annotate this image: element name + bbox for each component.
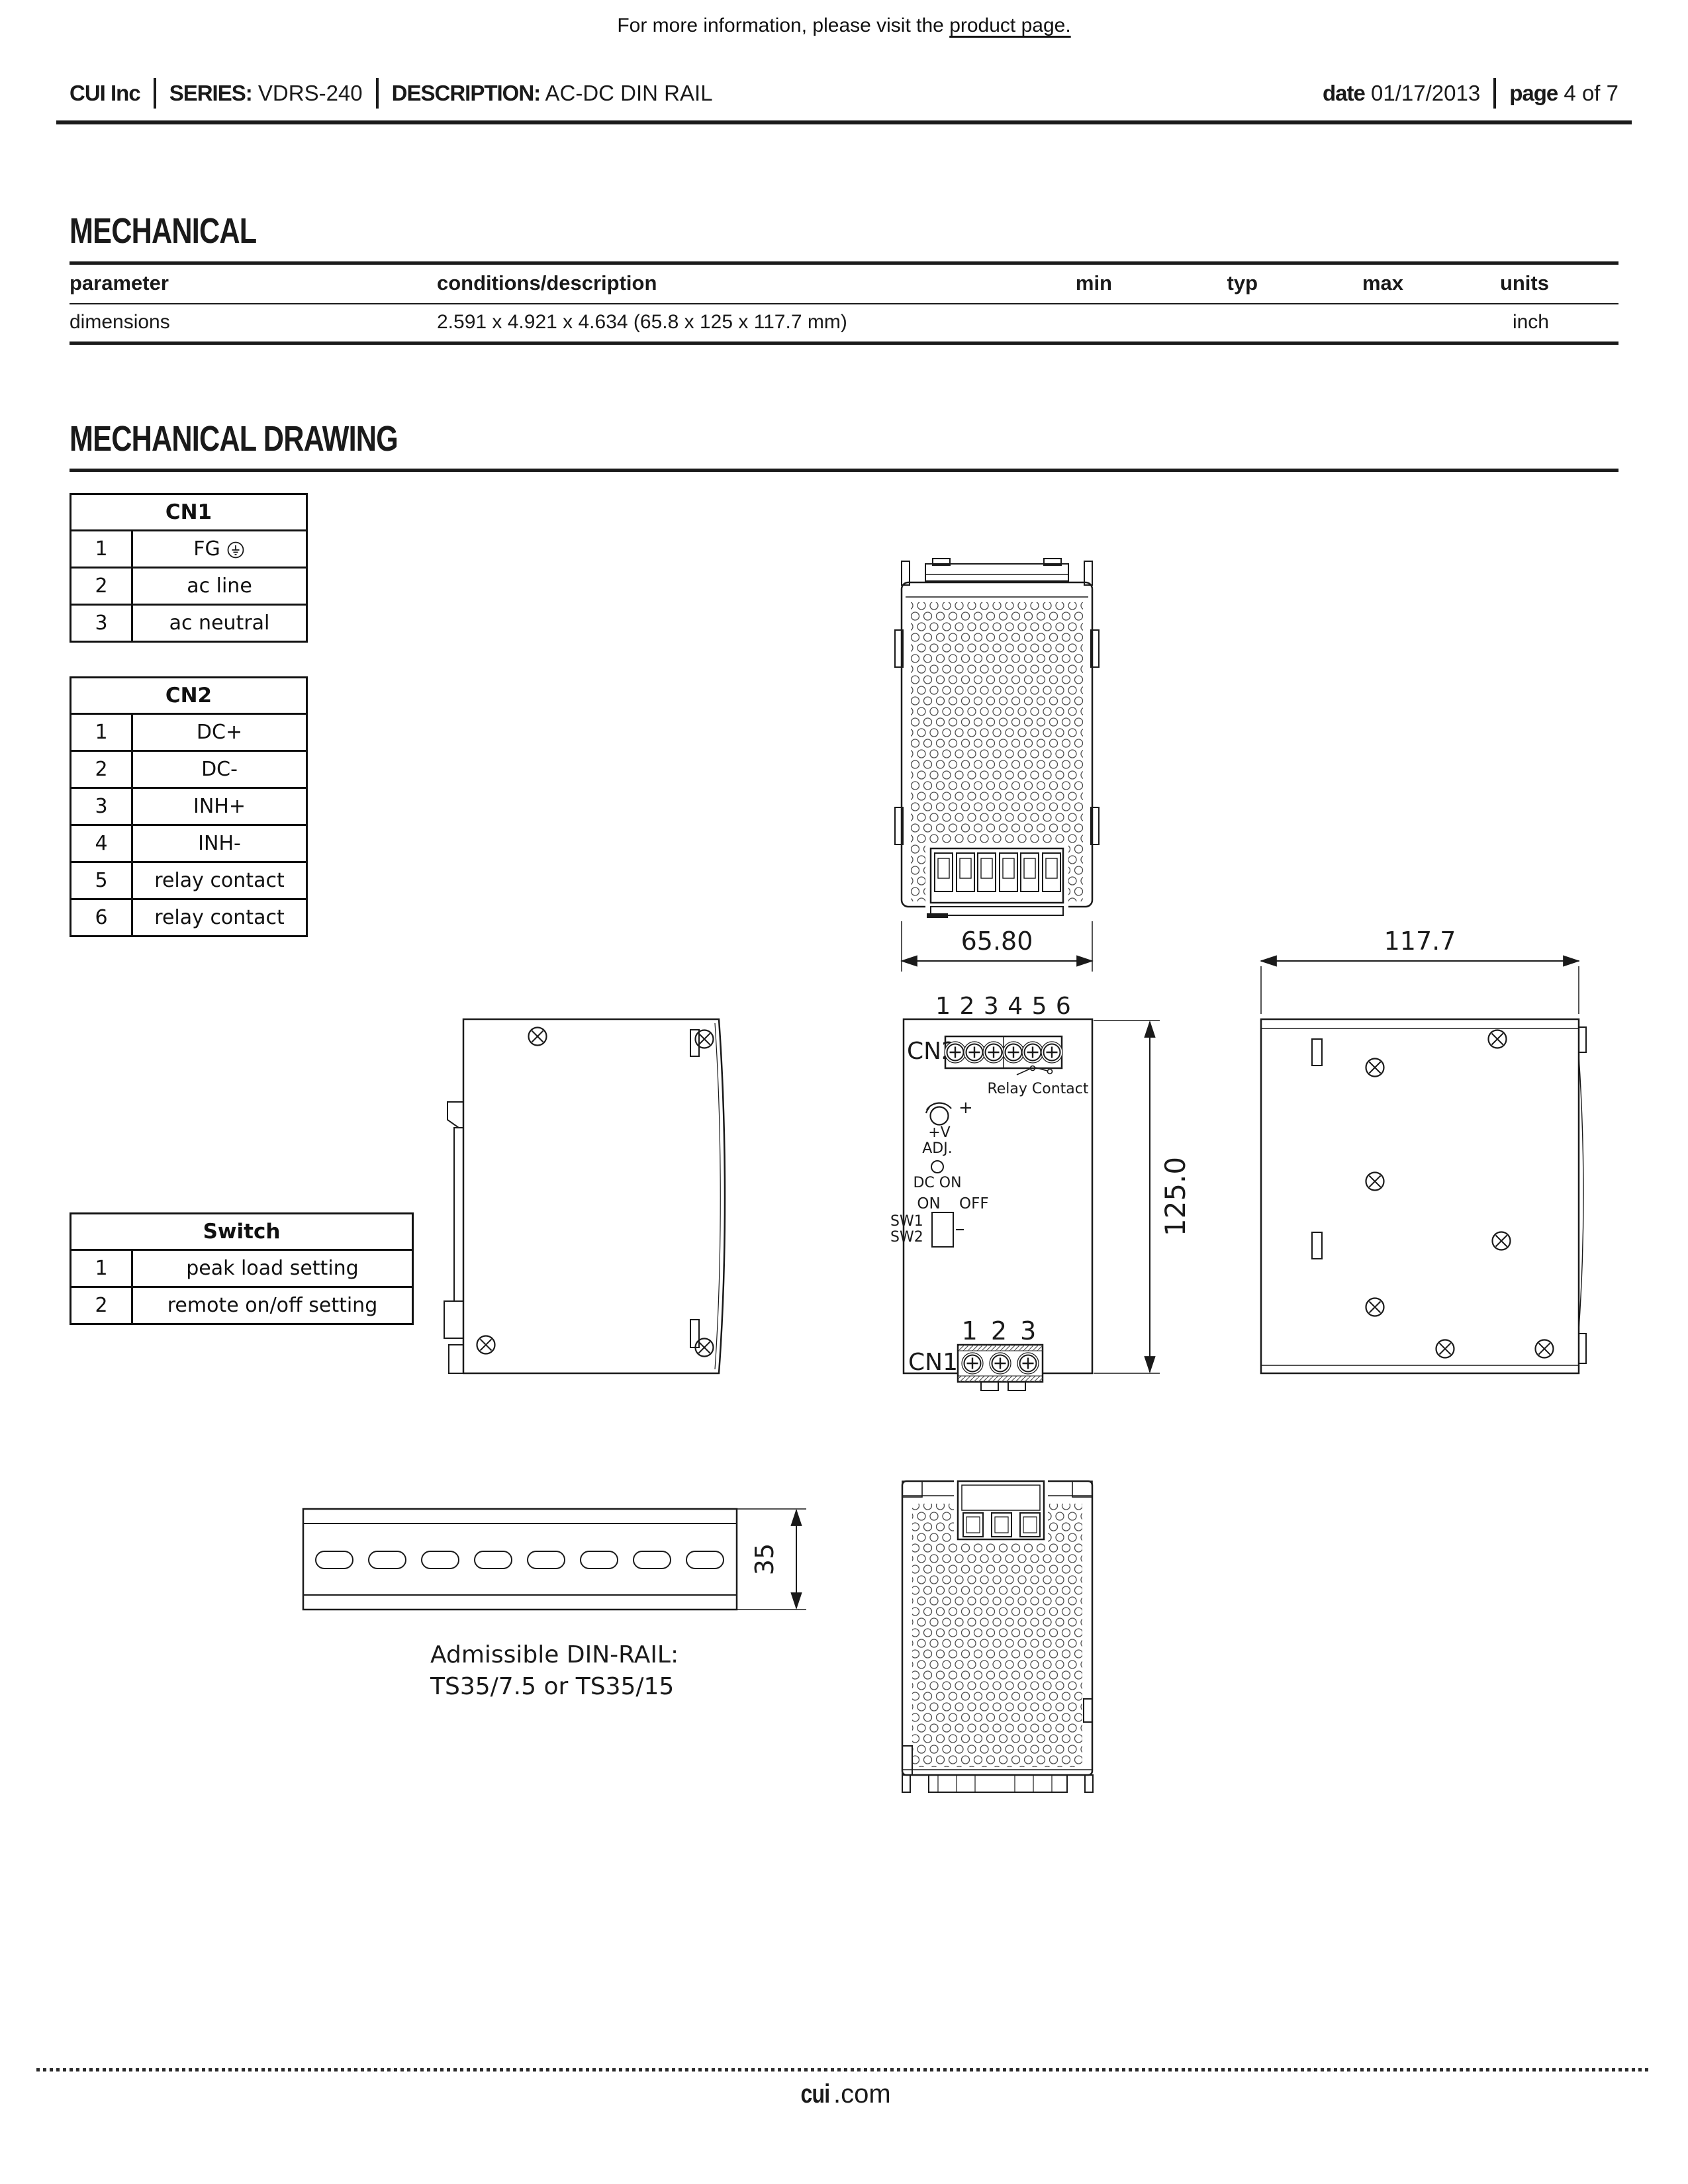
company-name: CUI Inc <box>70 81 140 106</box>
screw-icon <box>1366 1173 1384 1191</box>
bottom-view-drawing <box>902 1479 1093 1792</box>
mechanical-drawings-canvas: 65.80 1 2 3 4 5 6 CN2 <box>0 516 1688 1860</box>
din-clip-hook <box>1579 1027 1586 1052</box>
rail-caption-line2: TS35/7.5 or TS35/15 <box>430 1673 674 1700</box>
dc-on-led <box>931 1161 943 1173</box>
date: date 01/17/2013 <box>1323 81 1480 106</box>
sw2-label: SW2 <box>890 1229 923 1246</box>
right-side-view-drawing: 117.7 <box>1261 927 1586 1373</box>
info-bar: For more information, please visit the p… <box>0 15 1688 37</box>
rail-caption-line1: Admissible DIN-RAIL: <box>430 1641 679 1668</box>
cn2-terminal-block <box>945 1036 1062 1068</box>
product-page-link[interactable]: product page. <box>949 15 1070 36</box>
rule <box>70 303 1618 304</box>
top-view-drawing: 65.80 <box>895 559 1099 972</box>
spec-header-row: parameter conditions/description min typ… <box>70 271 1618 295</box>
cell-units: inch <box>1403 311 1549 334</box>
vadj-label-1: +V <box>928 1124 950 1141</box>
screw-icon <box>1366 1059 1384 1077</box>
screw-icon <box>477 1336 495 1354</box>
header-left: CUI Inc SERIES: VDRS-240 DESCRIPTION: AC… <box>70 78 713 109</box>
footer-site: cui.com <box>0 2079 1688 2109</box>
side-body <box>463 1019 725 1373</box>
screw-icon <box>696 1030 714 1048</box>
dim-rail-label: 35 <box>750 1543 779 1575</box>
cell-typ <box>1112 311 1258 334</box>
cn1-label: CN1 <box>908 1349 958 1376</box>
col-parameter: parameter <box>70 271 437 295</box>
dim-width-label: 65.80 <box>961 927 1033 956</box>
dip-switch <box>932 1212 964 1247</box>
page-number: page 4 of 7 <box>1509 81 1618 106</box>
sw-on-label: ON <box>917 1195 940 1212</box>
series: SERIES: VDRS-240 <box>169 81 363 106</box>
screw-icon <box>1436 1340 1454 1358</box>
din-clip-top <box>925 559 1068 581</box>
col-units: units <box>1403 271 1549 295</box>
cn1-pin-numbers: 1 2 3 <box>962 1316 1039 1345</box>
dimension-height: 125.0 <box>1094 1021 1192 1373</box>
footer-dotted-rule <box>36 2068 1652 2071</box>
dc-on-label: DC ON <box>913 1175 961 1191</box>
info-text: For more information, please visit the <box>617 15 949 36</box>
sw-off-label: OFF <box>959 1195 989 1212</box>
cell-conditions: 2.591 x 4.921 x 4.634 (65.8 x 125 x 117.… <box>437 311 966 334</box>
section-title-mechanical-drawing: MECHANICAL DRAWING <box>70 418 480 459</box>
dimension-width: 65.80 <box>902 921 1092 972</box>
cell-min <box>966 311 1112 334</box>
din-rail-drawing: 35 Admissible DIN-RAIL: TS35/7.5 or TS35… <box>303 1509 806 1700</box>
dimension-rail: 35 <box>737 1509 806 1610</box>
vadj-label-2: ADJ. <box>922 1140 952 1157</box>
cn1-terminal-block <box>958 1345 1043 1390</box>
header-right: date 01/17/2013 page 4 of 7 <box>1323 78 1618 109</box>
sw1-label: SW1 <box>890 1213 923 1230</box>
relay-contact-symbol <box>1017 1066 1053 1075</box>
input-terminal-block-bottom <box>958 1481 1044 1539</box>
left-side-view-drawing <box>444 1019 725 1373</box>
voltage-adjust-pot <box>926 1103 951 1125</box>
side-body <box>1261 1019 1579 1373</box>
col-typ: typ <box>1112 271 1258 295</box>
din-spring-clip <box>454 1128 463 1301</box>
plus-sign: + <box>959 1098 973 1118</box>
screw-icon <box>1536 1340 1554 1358</box>
screw-icon <box>1489 1030 1507 1048</box>
mounting-feet <box>902 1775 1093 1792</box>
din-clip-hook <box>1579 1334 1586 1363</box>
dim-height-label: 125.0 <box>1159 1157 1192 1236</box>
divider <box>1493 78 1496 109</box>
divider <box>154 78 156 109</box>
header-rule <box>56 120 1632 124</box>
cell-parameter: dimensions <box>70 311 437 334</box>
footer-site-bold: cui <box>801 2079 830 2109</box>
relay-contact-label: Relay Contact <box>987 1081 1088 1097</box>
screw-icon <box>529 1028 547 1046</box>
col-max: max <box>1258 271 1403 295</box>
screw-icon <box>1493 1232 1511 1250</box>
col-min: min <box>966 271 1112 295</box>
cell-max <box>1258 311 1403 334</box>
screw-icon <box>1366 1298 1384 1316</box>
footer-site-rest: .com <box>833 2079 891 2109</box>
rail-slots <box>316 1551 724 1569</box>
cn2-pin-numbers: 1 2 3 4 5 6 <box>935 993 1072 1020</box>
col-conditions: conditions/description <box>437 271 966 295</box>
front-view-drawing: 1 2 3 4 5 6 CN2 Relay Contact + <box>890 993 1192 1390</box>
dimension-depth: 117.7 <box>1261 927 1579 1014</box>
header-bar: CUI Inc SERIES: VDRS-240 DESCRIPTION: AC… <box>70 74 1618 113</box>
spec-data-row: dimensions 2.591 x 4.921 x 4.634 (65.8 x… <box>70 311 1618 334</box>
rule <box>70 469 1618 472</box>
description: DESCRIPTION: AC-DC DIN RAIL <box>392 81 713 106</box>
rule <box>70 261 1618 265</box>
vent-perforations <box>912 1504 1082 1767</box>
datasheet-page: For more information, please visit the p… <box>0 0 1688 2184</box>
dim-depth-label: 117.7 <box>1384 927 1456 956</box>
rule <box>70 341 1618 345</box>
divider <box>376 78 379 109</box>
section-title-mechanical: MECHANICAL <box>70 210 303 251</box>
